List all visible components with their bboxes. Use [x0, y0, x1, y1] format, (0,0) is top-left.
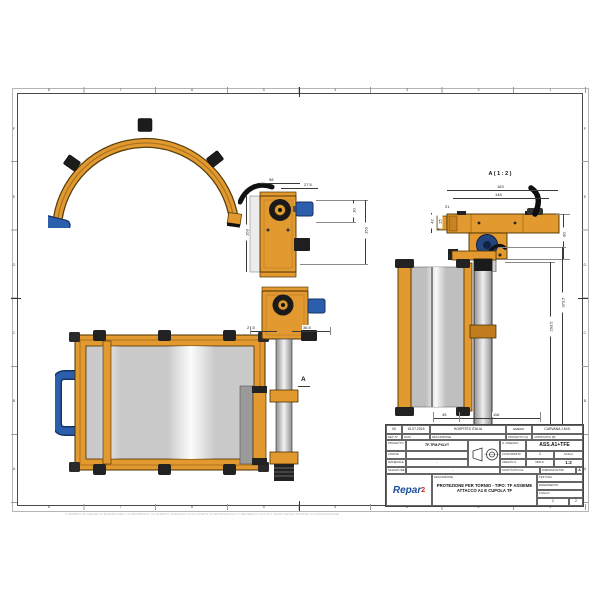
centering-mark-top [299, 87, 300, 97]
frame-label: 5 [228, 87, 300, 93]
frame-label: 3 [371, 87, 443, 93]
dim-label: 116 [492, 412, 500, 417]
dxf-label: DIMENSION DXF [540, 467, 576, 474]
dim-label: 98 [268, 177, 274, 182]
bar-end-block [449, 216, 457, 231]
extension-line [330, 327, 331, 335]
frame-label: 4 [300, 504, 372, 510]
dim-label: 21 [444, 204, 450, 209]
panel-highlight [167, 346, 215, 459]
dim-label: 163 [496, 184, 505, 189]
dim-line [433, 418, 540, 419]
extension-line [459, 412, 460, 422]
extension-line [433, 412, 434, 422]
dim-label: 45 [441, 412, 447, 417]
frame-label: E [582, 162, 588, 230]
frame-label: 7 [85, 504, 157, 510]
extension-line [316, 222, 356, 223]
lock-block [294, 238, 310, 251]
blue-knob [308, 299, 325, 313]
frame-label: 8 [13, 504, 85, 510]
material-label: MATERIALE [386, 459, 406, 467]
sheet-size: A [576, 467, 583, 474]
panel-highlight [426, 267, 446, 407]
blue-knob [296, 202, 313, 216]
extension-line [505, 262, 555, 263]
dim-label: 293.5 [549, 317, 554, 337]
arc-outline [57, 143, 234, 226]
extension-line [250, 327, 251, 335]
detail-marker: A [301, 376, 306, 383]
sheet-of: 2 [569, 498, 583, 506]
drawing-no-label: N. DISEGNO [500, 440, 526, 451]
scale-label: SCALA [554, 451, 583, 459]
weld-value: - [406, 467, 500, 474]
corner-clamp [69, 462, 80, 472]
revision-description: HOSPITEX ITALIA [430, 425, 506, 434]
clamp-bar [447, 214, 559, 233]
dim-line [260, 183, 300, 184]
centering-mark-left [11, 298, 21, 299]
dim-label: 27.5 [303, 182, 313, 187]
sheet-number: 1 [537, 498, 569, 506]
legal-disclaimer: A TERMINI DI LEGGE CI RISERVIAMO LA PROP… [65, 512, 425, 516]
pivot-center [278, 208, 282, 212]
frame-label: F [582, 94, 588, 162]
issued-label: EMESS. [506, 425, 532, 434]
project-field-label: PROGETTO [386, 440, 406, 451]
reference-label: RIFERIMENTO [537, 482, 583, 490]
dim-label: 150 [364, 223, 369, 239]
view-cupola-arc [48, 102, 244, 228]
arc-tube [57, 143, 234, 226]
conformity-value: 1 [526, 451, 554, 459]
centering-mark-right [578, 298, 588, 299]
frame-post [398, 263, 411, 411]
column-collar [270, 452, 298, 464]
column-bracket [470, 325, 496, 338]
edge-clamp [252, 386, 267, 393]
extension-line [540, 412, 541, 422]
frame-label: D [582, 230, 588, 298]
title-block: 00 15.07.2015 HOSPITEX ITALIA EMESS. CAR… [385, 424, 584, 507]
created-label: CREATO IL [500, 459, 526, 467]
edge-clamp [252, 458, 267, 465]
shield-handle [57, 375, 75, 431]
edge-clamp [158, 464, 171, 475]
dim-label: 36.5 [302, 325, 312, 330]
dim-label: 30 [352, 204, 357, 218]
centering-mark-bottom [299, 501, 300, 511]
frame-label: B [11, 367, 17, 435]
weld-label: SALDATURE [386, 467, 406, 474]
code-label: CODICE [386, 451, 406, 459]
shield-edge-frame [253, 388, 266, 462]
frame-label: 4 [300, 87, 372, 93]
drawing-title-line2: ATTACCO A1 E CUPOLA TF [433, 488, 536, 493]
conformity-label: CONFORMITA' [500, 451, 526, 459]
first-angle-projection-icon [469, 441, 500, 467]
screw [514, 222, 517, 225]
corner-clamp [395, 407, 414, 416]
dim-label: 42 [430, 215, 435, 229]
logo-superscript: 2 [421, 487, 425, 494]
dim-line [281, 188, 318, 189]
frame-label: 6 [156, 87, 228, 93]
frame-label: F [11, 94, 17, 162]
dim-line [292, 331, 330, 332]
pivot-center [281, 303, 285, 307]
edge-clamp [158, 330, 171, 341]
shield-edge [240, 386, 253, 464]
dim-label: 25 [438, 215, 443, 229]
screw [267, 229, 270, 232]
dim-line [550, 262, 551, 441]
arc-centerline [57, 143, 234, 226]
sheet-label: FOGLIO [537, 490, 583, 498]
drawing-number: ASS.A1+TFE [526, 440, 583, 451]
column-tube-side [474, 259, 492, 449]
bottom-flange [260, 272, 296, 277]
corner-clamp [69, 332, 80, 342]
extension-line [498, 247, 566, 248]
frame-label: 1 [514, 87, 586, 93]
title-caption: DESCRIZIONE [433, 475, 536, 479]
screw [478, 222, 481, 225]
backplate [250, 196, 260, 272]
projection-symbol-cell [468, 440, 500, 467]
detail-marker-underline [298, 386, 310, 387]
frame-label: C [11, 299, 17, 367]
screw [287, 229, 290, 232]
date-value: 15.07.2015 [402, 425, 430, 434]
frame-label: E [11, 162, 17, 230]
company-logo: Repar2 [386, 474, 432, 506]
code-value [406, 451, 468, 459]
frame-label: A [11, 435, 17, 503]
drawing-title-cell: DESCRIZIONE PROTEZIONE PER TORNIO - TIPO… [432, 474, 537, 506]
dim-label: 373.5 [561, 293, 566, 313]
frame-label: D [11, 230, 17, 298]
extension-line [316, 200, 368, 201]
replaced-label: SOSTITUITO DA [500, 467, 540, 474]
frame-label: 6 [156, 504, 228, 510]
created-value: MIS.S. [526, 459, 554, 467]
project-value: TF-TFM-PXLVT [406, 440, 468, 451]
issued-by: CARVANA J.M.B. [532, 425, 583, 434]
frame-label: 8 [13, 87, 85, 93]
dim-label: 80 [562, 228, 567, 242]
drawing-page: 8 7 6 5 4 3 2 1 8 7 6 5 4 3 2 1 F E D C … [0, 0, 600, 600]
column-collar [270, 390, 298, 402]
column-tube [276, 339, 292, 469]
scale-value: 1:2 [554, 459, 583, 467]
dim-line [250, 331, 277, 332]
dim-line [447, 190, 558, 191]
arc-clamp [138, 119, 152, 132]
view-side-mount [238, 180, 338, 280]
rev-value: 00 [386, 425, 402, 434]
frame-label: C [582, 299, 588, 367]
corner-clamp [395, 259, 414, 268]
frame-label: 7 [85, 87, 157, 93]
dim-label: 148 [494, 192, 503, 197]
dim-line [453, 198, 549, 199]
hinge-block [457, 211, 466, 215]
extension-line [300, 264, 368, 265]
edge-clamp [93, 330, 106, 341]
edge-clamp [93, 464, 106, 475]
frame-label: 5 [228, 504, 300, 510]
logo-text: Repar [393, 485, 421, 496]
material-value: - [406, 459, 468, 467]
ribbed-top [474, 259, 492, 271]
frame-label: 2 [443, 87, 515, 93]
panel-mullion [103, 341, 111, 464]
corner-clamp [456, 259, 470, 268]
view-column-front [235, 283, 340, 488]
finish-label: FINITURA [537, 474, 583, 482]
dim-label: 163 [245, 225, 250, 241]
